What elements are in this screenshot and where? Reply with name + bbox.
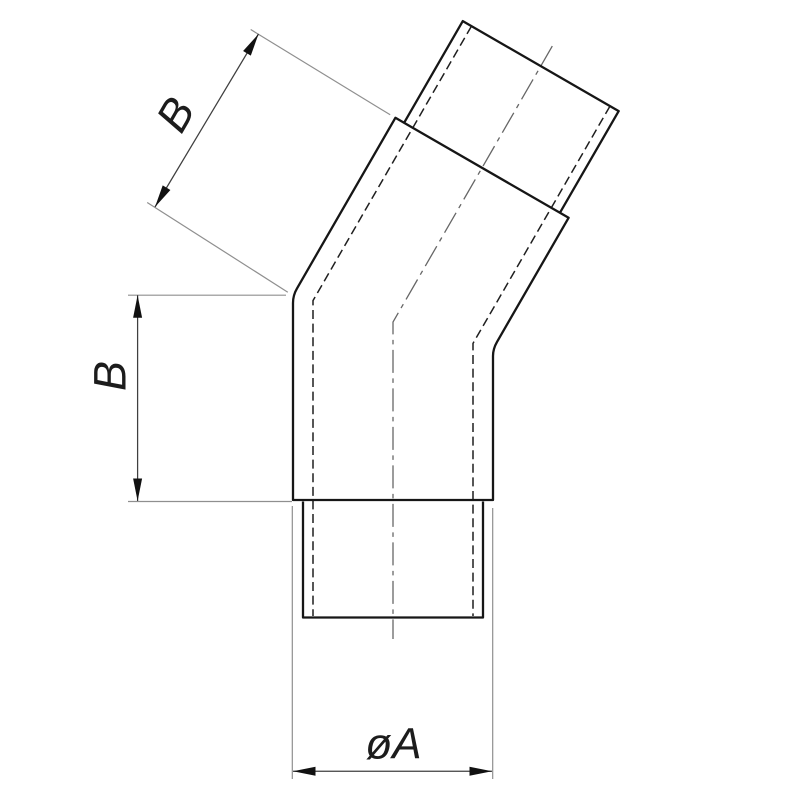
svg-text:B: B bbox=[85, 361, 136, 391]
svg-text:øA: øA bbox=[365, 720, 421, 769]
